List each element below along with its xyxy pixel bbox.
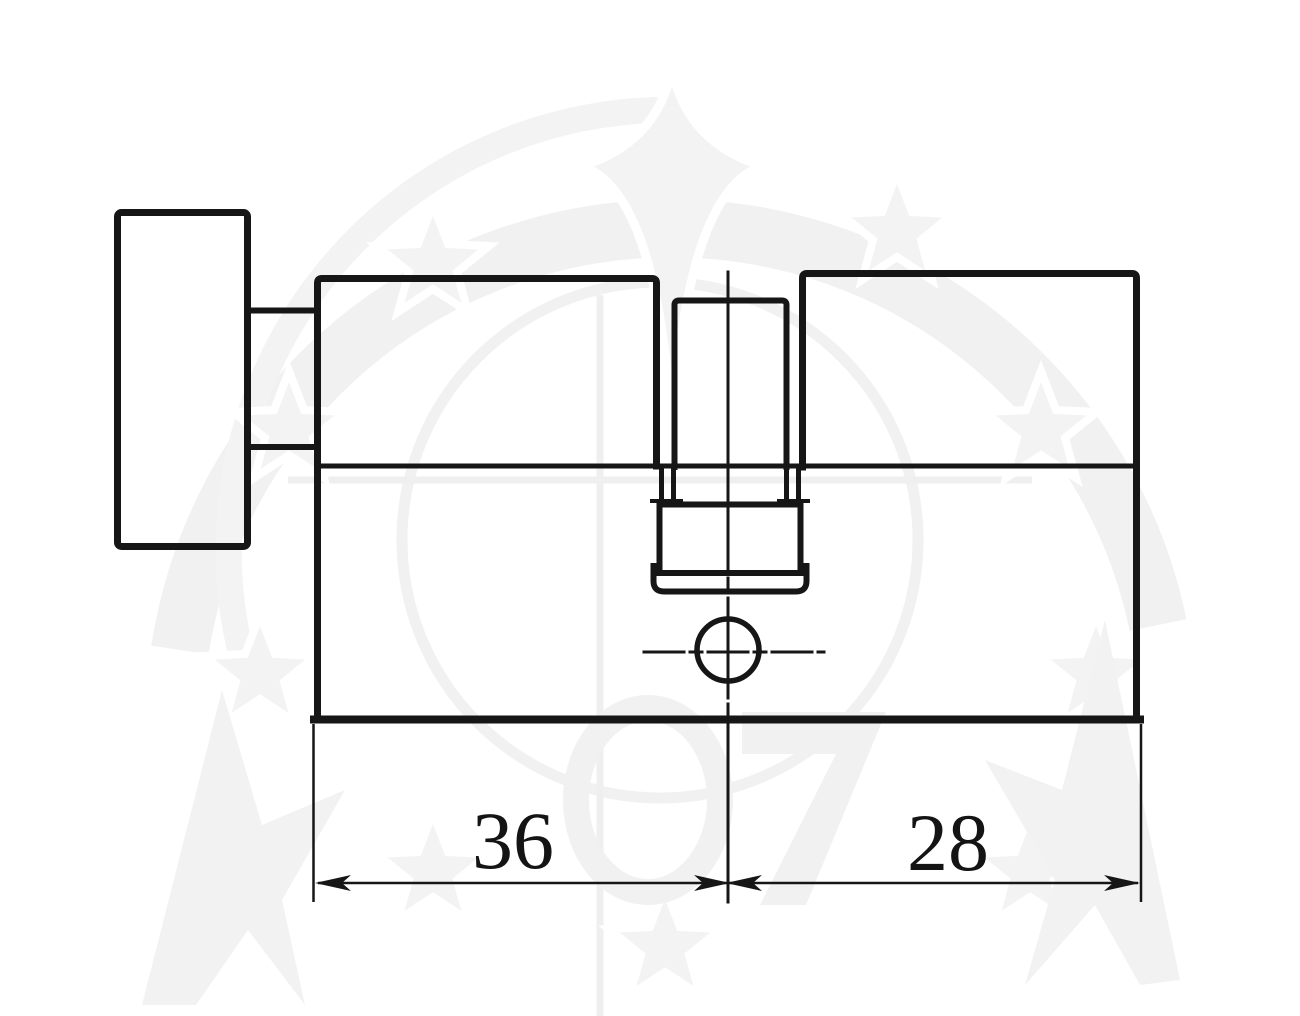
watermark-letter-7 (742, 712, 886, 905)
dimension-label-36: 36 (472, 795, 554, 886)
technical-drawing-page: 36 28 (0, 0, 1300, 1016)
technical-drawing-canvas: 36 28 (0, 0, 1300, 1016)
plug-outline (675, 301, 787, 468)
dimension-label-28: 28 (907, 797, 989, 888)
cam-bottom-cap (654, 566, 807, 592)
cam-body (660, 505, 801, 574)
watermark-star (609, 888, 721, 995)
